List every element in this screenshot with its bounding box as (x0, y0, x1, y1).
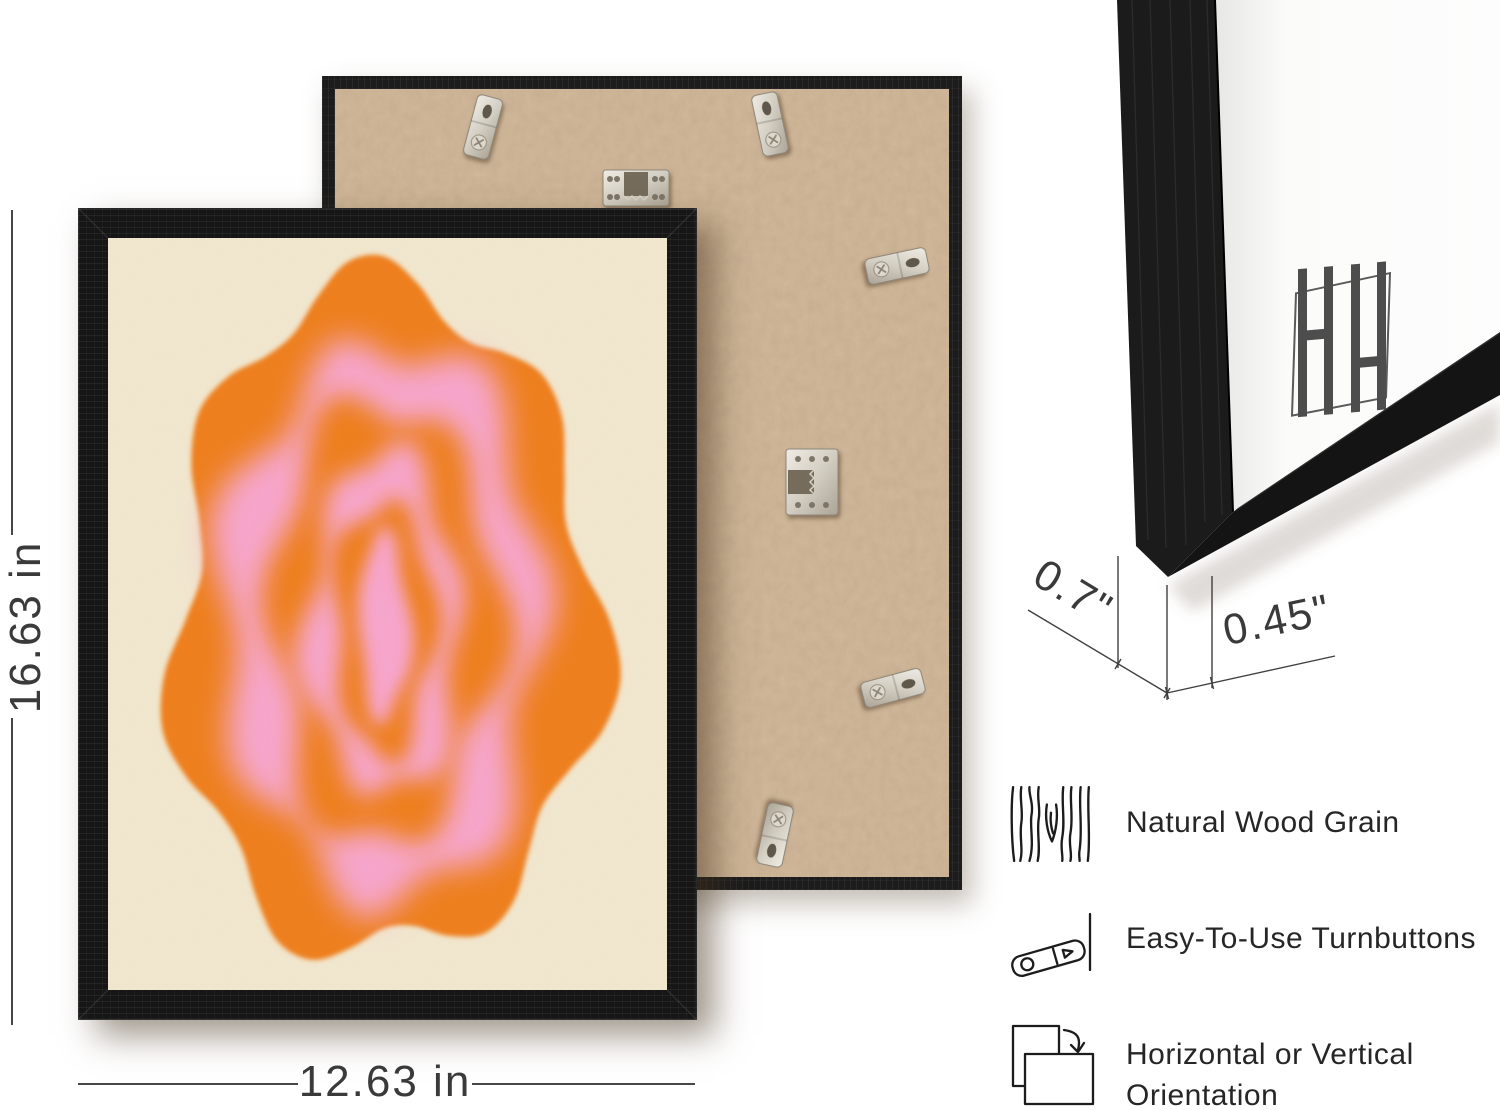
turnbutton-right-upper (864, 247, 930, 285)
feature-label-orientation-line2: Orientation (1126, 1079, 1278, 1110)
framed-artwork (108, 238, 667, 990)
feature-label-orientation-line1: Horizontal or Vertical (1126, 1038, 1414, 1072)
width-dimension-label: 12.63 in (299, 1057, 472, 1107)
height-dimension-line-bottom (11, 718, 13, 1025)
depth-dimension-label: 0.7" (1025, 550, 1121, 634)
sawtooth-hanger-middle (786, 449, 838, 515)
artwork-svg (108, 238, 667, 990)
wood-grain-icon (1008, 786, 1096, 862)
feature-label-turnbuttons: Easy-To-Use Turnbuttons (1126, 922, 1476, 956)
turnbutton-right-lower (860, 667, 927, 708)
width-dimension-line-right (472, 1083, 695, 1085)
feature-label-wood-grain: Natural Wood Grain (1126, 806, 1400, 840)
front-frame (78, 208, 697, 1020)
corner-detail-view: 0.7" 0.45" (1000, 0, 1500, 730)
moulding-width-dimension-label: 0.45" (1219, 586, 1336, 656)
orientation-icon (1010, 1023, 1098, 1109)
turnbutton-top-right (751, 91, 789, 157)
product-image-stage: 0.7" 0.45" 16.63 in 12.63 in Natural Woo… (0, 0, 1500, 1110)
turnbutton-bottom (756, 802, 794, 868)
turnbutton-icon (1008, 903, 1100, 981)
turnbutton-top-left (462, 94, 503, 161)
art-grain-overlay (108, 238, 667, 990)
height-dimension-label: 16.63 in (1, 541, 51, 714)
width-dimension-line-left (78, 1083, 298, 1085)
sawtooth-hanger-top (603, 170, 669, 206)
height-dimension-line-top (11, 210, 13, 535)
